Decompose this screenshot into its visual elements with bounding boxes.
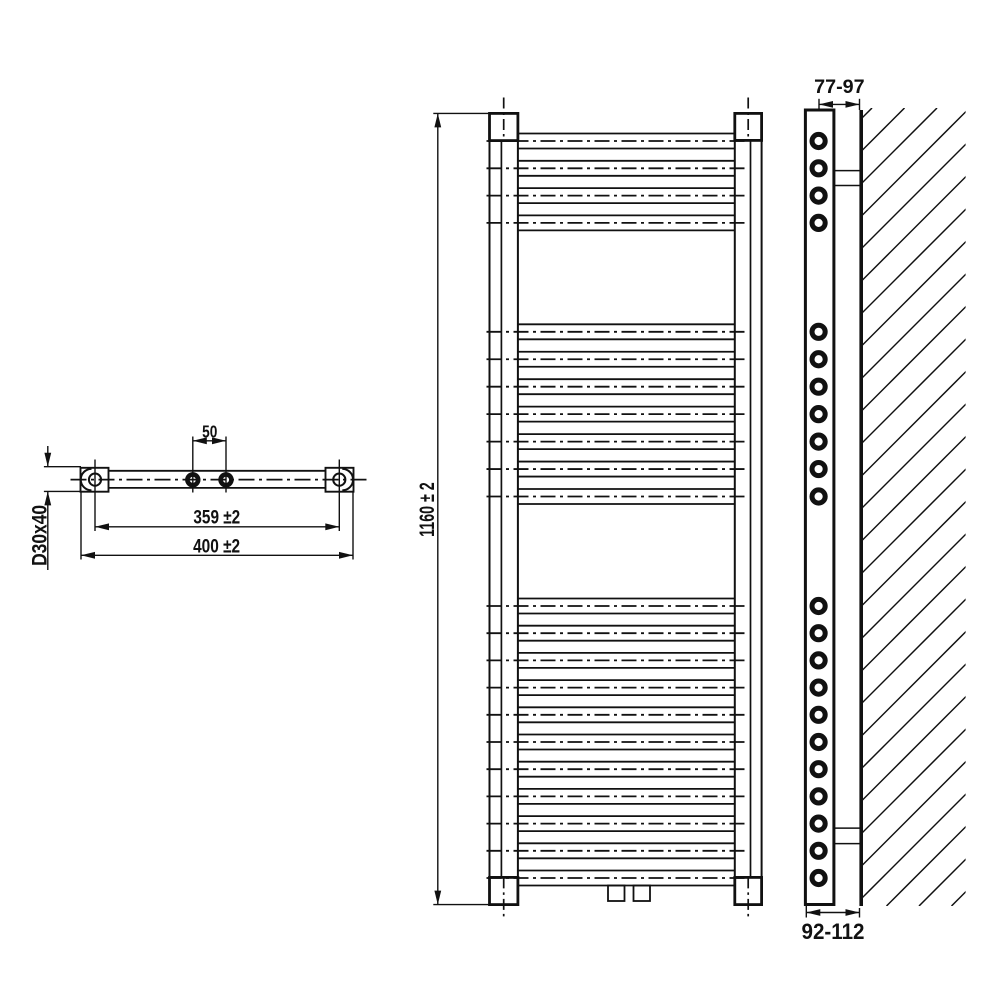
svg-text:359 ±2: 359 ±2 <box>193 506 240 528</box>
svg-text:1160 ± 2: 1160 ± 2 <box>415 482 439 537</box>
svg-text:92-112: 92-112 <box>802 919 865 944</box>
svg-text:400 ±2: 400 ±2 <box>193 536 240 557</box>
svg-text:77-97: 77-97 <box>814 77 865 98</box>
svg-text:D30x40: D30x40 <box>29 505 52 566</box>
svg-text:50: 50 <box>202 422 217 442</box>
